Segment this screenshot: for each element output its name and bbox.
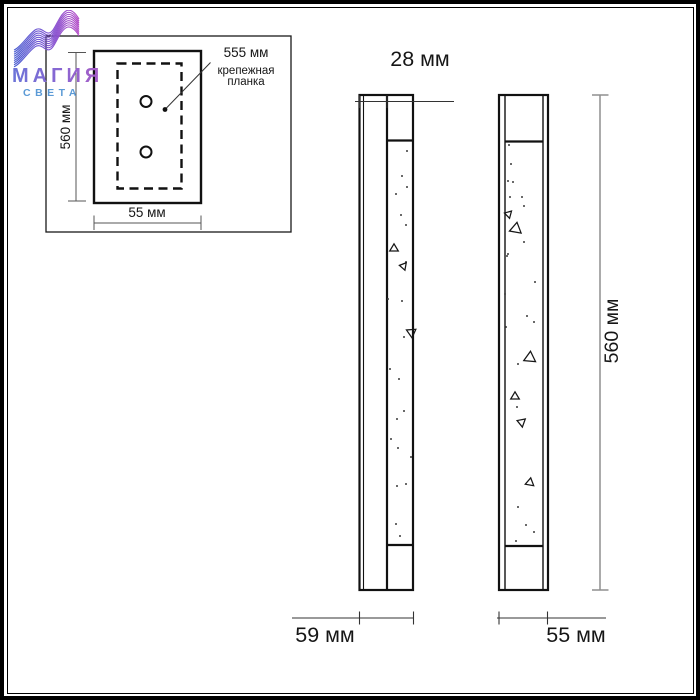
sparkle-dot (523, 205, 525, 207)
sparkle-dot (533, 321, 535, 323)
sparkle-dot (406, 186, 408, 188)
sparkle-dot (390, 438, 392, 440)
sparkle-dot (401, 175, 403, 177)
sparkle-dot (510, 163, 512, 165)
lamp-side-view (360, 95, 419, 590)
sparkle-dot (410, 456, 412, 458)
dimension-drawing: 555 мм крепежная планка 560 мм 55 мм (4, 4, 696, 696)
sparkle-dot (405, 483, 407, 485)
sparkle-dot (398, 378, 400, 380)
logo-subtitle: СВЕТА (23, 87, 81, 99)
back-plate-outline (94, 51, 201, 203)
mounting-bracket-dashed-outline (118, 64, 182, 189)
front-view-outline (499, 95, 548, 590)
detail-height-label: 560 мм (58, 105, 73, 150)
lamp-front-view (499, 95, 548, 590)
sparkle-dot (389, 368, 391, 370)
sparkle-dot (395, 523, 397, 525)
sparkle-dot (395, 193, 397, 195)
leader-line (165, 63, 211, 110)
sparkle-dot (517, 506, 519, 508)
detail-width-label: 55 мм (128, 205, 165, 220)
sparkle-dot (397, 447, 399, 449)
width-bottom-label: 55 мм (546, 623, 605, 647)
leader-dot (163, 107, 168, 112)
depth-top-label: 28 мм (390, 47, 449, 71)
sparkle-dot (534, 281, 536, 283)
sparkle-dot (507, 253, 509, 255)
depth-bottom-label: 59 мм (295, 623, 354, 647)
sparkle-dot (526, 315, 528, 317)
sparkle-dot (533, 531, 535, 533)
sparkle-dot (507, 180, 509, 182)
sparkle-dot (401, 300, 403, 302)
part-name-line2: планка (227, 76, 265, 88)
mounting-hole-top (141, 96, 152, 107)
sparkle-dot (399, 535, 401, 537)
sparkle-dot (517, 363, 519, 365)
sparkle-dot (505, 326, 507, 328)
sparkle-dot (403, 410, 405, 412)
sparkle-dot (515, 540, 517, 542)
sparkle-dot (406, 150, 408, 152)
sparkle-dot (400, 214, 402, 216)
sparkle-dot (396, 485, 398, 487)
sparkle-dot (506, 255, 508, 257)
mounting-hole-bottom (141, 147, 152, 158)
sparkle-dot (525, 524, 527, 526)
sparkle-dot (387, 298, 389, 300)
sparkle-dot (516, 406, 518, 408)
sparkle-dot (523, 241, 525, 243)
brand-logo: МАГИЯ СВЕТА (10, 8, 106, 104)
bracket-length-label: 555 мм (224, 45, 269, 60)
sparkle-dot (508, 144, 510, 146)
product-dimension-sheet: МАГИЯ СВЕТА 555 мм крепежная планка (0, 0, 700, 700)
sparkle-dot (405, 224, 407, 226)
logo-title: МАГИЯ (12, 65, 103, 88)
logo-waves-icon (12, 10, 84, 68)
sparkle-dot (512, 181, 514, 183)
sparkle-dot (521, 196, 523, 198)
sparkle-dot (504, 293, 506, 295)
sparkle-dot (509, 196, 511, 198)
sparkle-dot (403, 336, 405, 338)
sparkle-dot (396, 418, 398, 420)
height-right-label: 560 мм (601, 299, 623, 364)
